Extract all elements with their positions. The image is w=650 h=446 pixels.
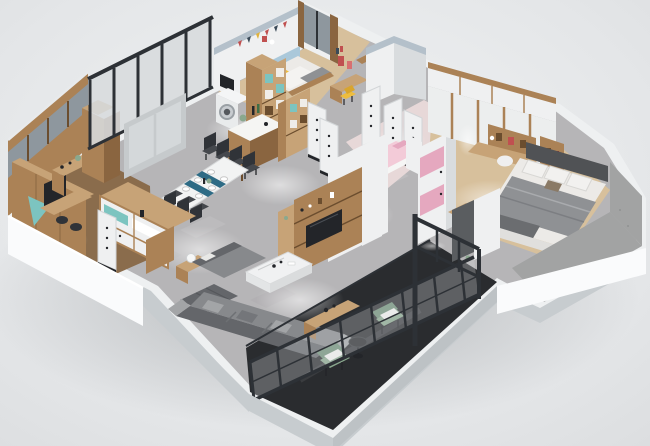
cup [272, 264, 276, 268]
place-setting [195, 194, 202, 198]
wall-art [262, 36, 267, 42]
table-bottle [203, 178, 205, 184]
decor-item [308, 204, 311, 207]
island-plant [240, 115, 247, 122]
wall-clock [270, 40, 275, 45]
bottle [252, 106, 255, 115]
place-setting [207, 170, 214, 174]
counter-plant [75, 155, 81, 161]
book [336, 48, 339, 54]
hutch-cubby [496, 133, 502, 141]
decor-vase [332, 304, 335, 307]
decor-frame [330, 192, 334, 198]
bottle [257, 104, 260, 113]
shelf-cubby [276, 68, 284, 77]
apartment-isometric-render [0, 0, 650, 446]
cabinet-handle [119, 235, 121, 237]
shelf-cubby [290, 120, 297, 128]
decor-frame [318, 198, 322, 204]
book [288, 262, 295, 265]
counter-bowl [60, 165, 64, 169]
window-wood-trim [298, 0, 304, 49]
wall-speckle [619, 209, 621, 211]
shelf-cubby-dark [265, 106, 273, 115]
wardrobe-handle [440, 193, 442, 195]
hutch-books [508, 137, 514, 145]
shelf-cubby-teal [265, 74, 273, 83]
place-setting [208, 186, 215, 190]
shelf-cubby-teal [276, 84, 284, 93]
place-setting [194, 178, 201, 182]
window-wood-trim [330, 14, 338, 64]
shelf-cubby-dark [300, 115, 307, 123]
study-chair [70, 223, 82, 231]
wall-speckle [627, 225, 629, 227]
decor-item [300, 208, 303, 211]
place-setting [182, 187, 189, 191]
poster-red [338, 56, 344, 66]
decor-item [140, 210, 144, 217]
floorplan-render-stage [0, 0, 650, 446]
study-chair [56, 216, 68, 224]
wardrobe-handle [440, 171, 442, 173]
decor-vase [324, 308, 328, 312]
place-setting [220, 177, 227, 181]
kettle [264, 122, 268, 126]
shelf-cubby [300, 99, 307, 107]
bedroom-media-dark-panel [452, 200, 474, 262]
media-white-end-panel [362, 160, 382, 246]
counter-bowl [69, 162, 72, 165]
table-centerpiece [207, 179, 212, 184]
book [340, 46, 343, 52]
shelf-cubby-teal [290, 104, 297, 112]
shelf-plant [284, 216, 288, 220]
washer-drum [224, 109, 230, 115]
hutch-cubby [520, 140, 526, 148]
white-end-panel [98, 210, 116, 273]
poster-pink [347, 61, 352, 69]
pouf [497, 156, 513, 167]
cup [280, 261, 283, 264]
desk-lamp [490, 136, 494, 140]
shelf-side [278, 100, 286, 162]
shelf-cubby [265, 90, 273, 99]
